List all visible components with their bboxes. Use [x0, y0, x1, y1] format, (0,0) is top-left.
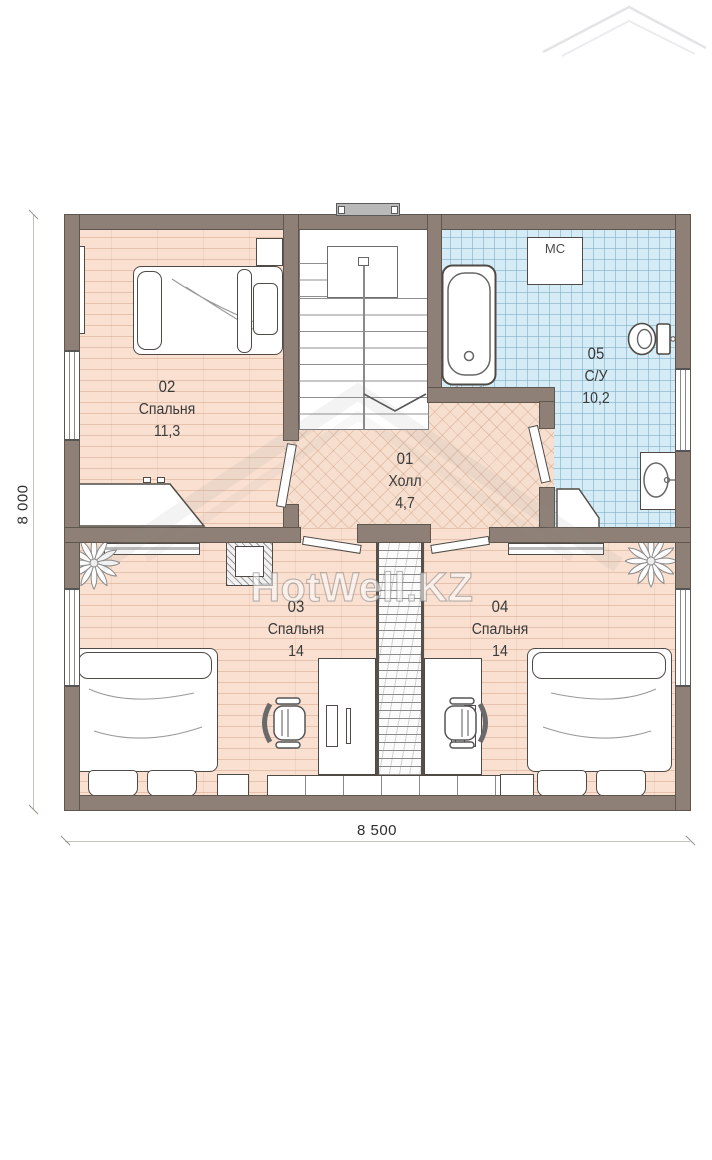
window [65, 350, 79, 441]
office-chair [436, 694, 492, 752]
wall-bedroom02-stairs [284, 215, 298, 440]
wall-mid-right [490, 528, 690, 542]
room-label-hall: 01 Холл 4,7 [352, 448, 458, 514]
dimension-line-bottom [65, 841, 690, 842]
window [676, 368, 690, 452]
room-area: 14 [447, 641, 553, 663]
bathroom-corner-cabinet [556, 488, 600, 529]
room-label-bedroom-02: 02 Спальня 11,3 [114, 376, 220, 442]
room-area: 10,2 [543, 388, 649, 410]
dresser [78, 483, 206, 528]
room-area: 4,7 [352, 493, 458, 515]
bathtub [441, 264, 497, 392]
pillow [137, 271, 162, 350]
bed-stool [596, 770, 646, 797]
wall-stairs-bathroom [428, 215, 441, 395]
room-number: 02 [114, 376, 220, 399]
wall-top [65, 215, 690, 229]
dimension-line-left [33, 215, 34, 810]
wall-bath-hall-horizontal [428, 388, 554, 402]
pillow [78, 652, 212, 679]
washing-machine-label: МС [528, 241, 582, 256]
room-name: Холл [352, 471, 458, 493]
room-label-bedroom-03: 03 Спальня 14 [243, 596, 349, 662]
bed-stool [147, 770, 197, 797]
stair-direction-arrow [362, 392, 430, 416]
wall-shelf [508, 543, 604, 555]
room-label-bathroom: 05 С/У 10,2 [543, 343, 649, 409]
room-number: 01 [352, 448, 458, 471]
room-number: 03 [243, 596, 349, 619]
keyboard [346, 708, 351, 744]
washing-machine: МС [527, 237, 583, 285]
office-chair [258, 694, 314, 752]
room-number: 05 [543, 343, 649, 366]
wall-right [676, 215, 690, 810]
wall-mid-center-stub [358, 525, 430, 542]
wall-left [65, 215, 79, 810]
room-name: Спальня [243, 619, 349, 641]
stair-post [358, 257, 369, 266]
storage-cabinet-row [267, 775, 533, 797]
floor-plan-page: МС [0, 0, 712, 1160]
nightstand [217, 774, 249, 797]
wall-mid-left [65, 528, 300, 542]
monitor [326, 705, 338, 747]
partition-shaft [376, 542, 424, 775]
bed-stool [537, 770, 587, 797]
window [676, 588, 690, 687]
room-number: 04 [447, 596, 553, 619]
nightstand [500, 774, 534, 797]
room-name: Спальня [447, 619, 553, 641]
bed-stool [88, 770, 138, 797]
window [65, 588, 79, 687]
chimney-shaft [226, 537, 273, 586]
plant-symbol [625, 534, 677, 588]
blanket-roll [237, 269, 252, 353]
room-name: С/У [543, 366, 649, 388]
roof-vent [336, 203, 400, 216]
dimension-label-depth: 8 000 [15, 482, 32, 528]
dimension-label-width: 8 500 [322, 822, 432, 839]
room-label-bedroom-04: 04 Спальня 14 [447, 596, 553, 662]
wall-bottom [65, 796, 690, 810]
room-name: Спальня [114, 399, 220, 421]
sink-basin [641, 453, 676, 509]
room-area: 11,3 [114, 421, 220, 443]
pillow [253, 283, 278, 335]
room-area: 14 [243, 641, 349, 663]
nightstand [256, 238, 283, 266]
